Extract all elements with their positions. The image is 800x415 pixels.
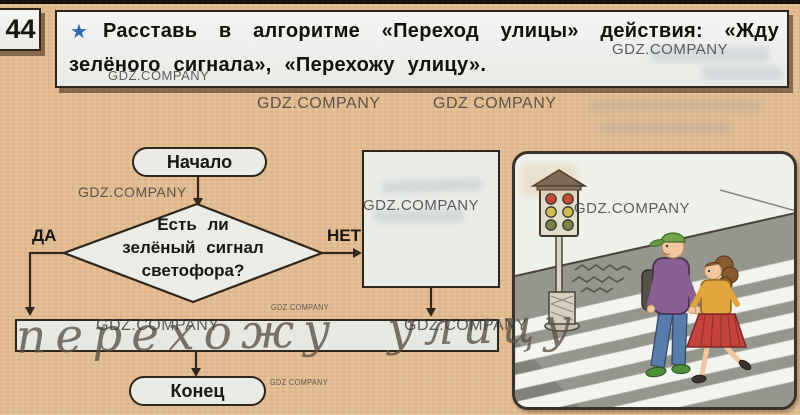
red-light: [563, 194, 573, 204]
show-through-smudge: [650, 46, 770, 62]
connector-yes-branch: [30, 253, 64, 308]
start-label: Начало: [167, 152, 232, 173]
traffic-light-roof: [533, 170, 585, 186]
watermark: GDZ.COMPANY: [257, 95, 380, 113]
task-text-box: ★ Расставь в алгоритме «Переход улицы» д…: [55, 10, 789, 88]
crosswalk-illustration: [512, 151, 797, 410]
flowchart-answer-box: [15, 319, 499, 352]
boy-cap: [661, 233, 685, 242]
task-text-line2: зелёного сигнала», «Перехожу улицу».: [69, 54, 486, 77]
decision-line3: светофора?: [86, 259, 300, 282]
green-light: [563, 220, 573, 230]
arrowhead-right-icon: [353, 248, 362, 258]
show-through-smudge: [590, 100, 760, 112]
flowchart-end-node: Конец: [129, 376, 266, 406]
yellow-light: [563, 207, 573, 217]
decision-line1: Есть ли: [86, 213, 300, 236]
traffic-light-pole: [556, 234, 562, 292]
branch-label-yes: ДА: [32, 226, 56, 246]
watermark: GDZ COMPANY: [271, 303, 329, 312]
watermark: GDZ.COMPANY: [78, 184, 187, 200]
boy-leg: [672, 312, 687, 366]
boy-hand: [647, 305, 655, 313]
decision-line2: зелёный сигнал: [86, 236, 300, 259]
show-through-smudge: [374, 210, 464, 222]
boy-eye: [666, 245, 668, 247]
girl-torso: [701, 280, 731, 316]
red-light: [546, 194, 556, 204]
decision-label: Есть ли зелёный сигнал светофора?: [86, 213, 300, 282]
arrowhead-down-icon: [193, 198, 203, 207]
task-text-line1: Расставь в алгоритме «Переход улицы» дей…: [103, 20, 779, 43]
arrowhead-down-icon: [25, 307, 35, 316]
show-through-smudge: [600, 122, 730, 134]
arrowhead-down-icon: [426, 308, 436, 317]
far-curb-line: [720, 190, 797, 212]
end-label: Конец: [171, 381, 225, 402]
crosswalk-illustration-svg: [515, 154, 797, 410]
scanned-textbook-page: 44 ★ Расставь в алгоритме «Переход улицы…: [0, 0, 800, 415]
green-light: [546, 220, 556, 230]
girl-eye: [708, 270, 710, 272]
branch-label-no: НЕТ: [327, 226, 361, 246]
star-icon: ★: [70, 21, 88, 43]
girl-hand: [689, 307, 696, 314]
watermark: GDZ COMPANY: [270, 378, 328, 387]
page-top-edge: [0, 0, 800, 4]
task-number-box: 44: [0, 8, 41, 51]
yellow-light: [546, 207, 556, 217]
flowchart-empty-action-box: [362, 150, 500, 288]
task-number: 44: [5, 14, 35, 45]
boy-shoe: [672, 365, 690, 374]
show-through-smudge: [702, 66, 782, 80]
flowchart-start-node: Начало: [132, 147, 267, 177]
show-through-smudge: [382, 178, 482, 193]
watermark: GDZ COMPANY: [433, 95, 556, 113]
